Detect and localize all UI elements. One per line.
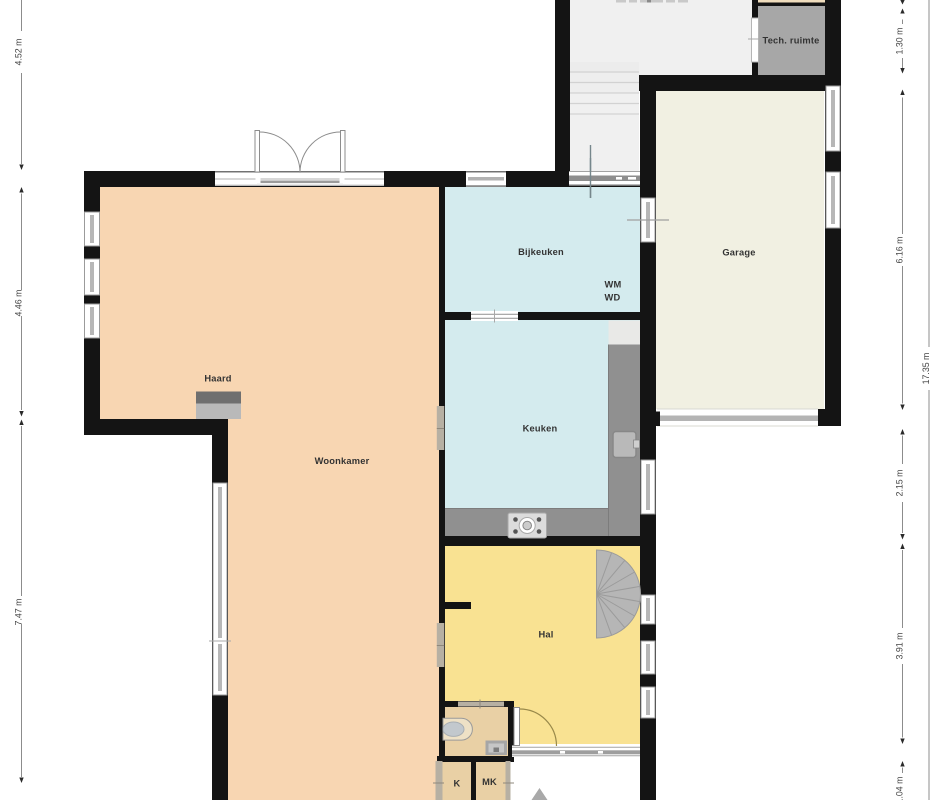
svg-text:WM: WM [605,280,622,290]
svg-text:WD: WD [605,293,621,303]
svg-text:Woonkamer: Woonkamer [315,456,370,466]
svg-text:1.04 m: 1.04 m [895,777,905,800]
svg-text:6.16 m: 6.16 m [895,237,905,264]
svg-text:4.52 m: 4.52 m [14,39,24,66]
svg-text:K: K [454,779,461,789]
svg-text:Hal: Hal [538,630,553,640]
svg-text:17.35 m: 17.35 m [921,353,931,385]
svg-text:4.46 m: 4.46 m [14,290,24,317]
svg-text:7.47 m: 7.47 m [14,599,24,626]
svg-text:3.91 m: 3.91 m [895,633,905,660]
svg-text:Bijkeuken: Bijkeuken [518,247,564,257]
svg-text:Keuken: Keuken [523,424,558,434]
svg-text:MK: MK [482,777,497,787]
svg-text:Tech. ruimte: Tech. ruimte [763,36,820,46]
svg-text:2.15 m: 2.15 m [895,470,905,497]
svg-text:1.30 m: 1.30 m [895,28,905,55]
svg-text:Haard: Haard [204,374,231,384]
svg-text:Garage: Garage [722,248,755,258]
